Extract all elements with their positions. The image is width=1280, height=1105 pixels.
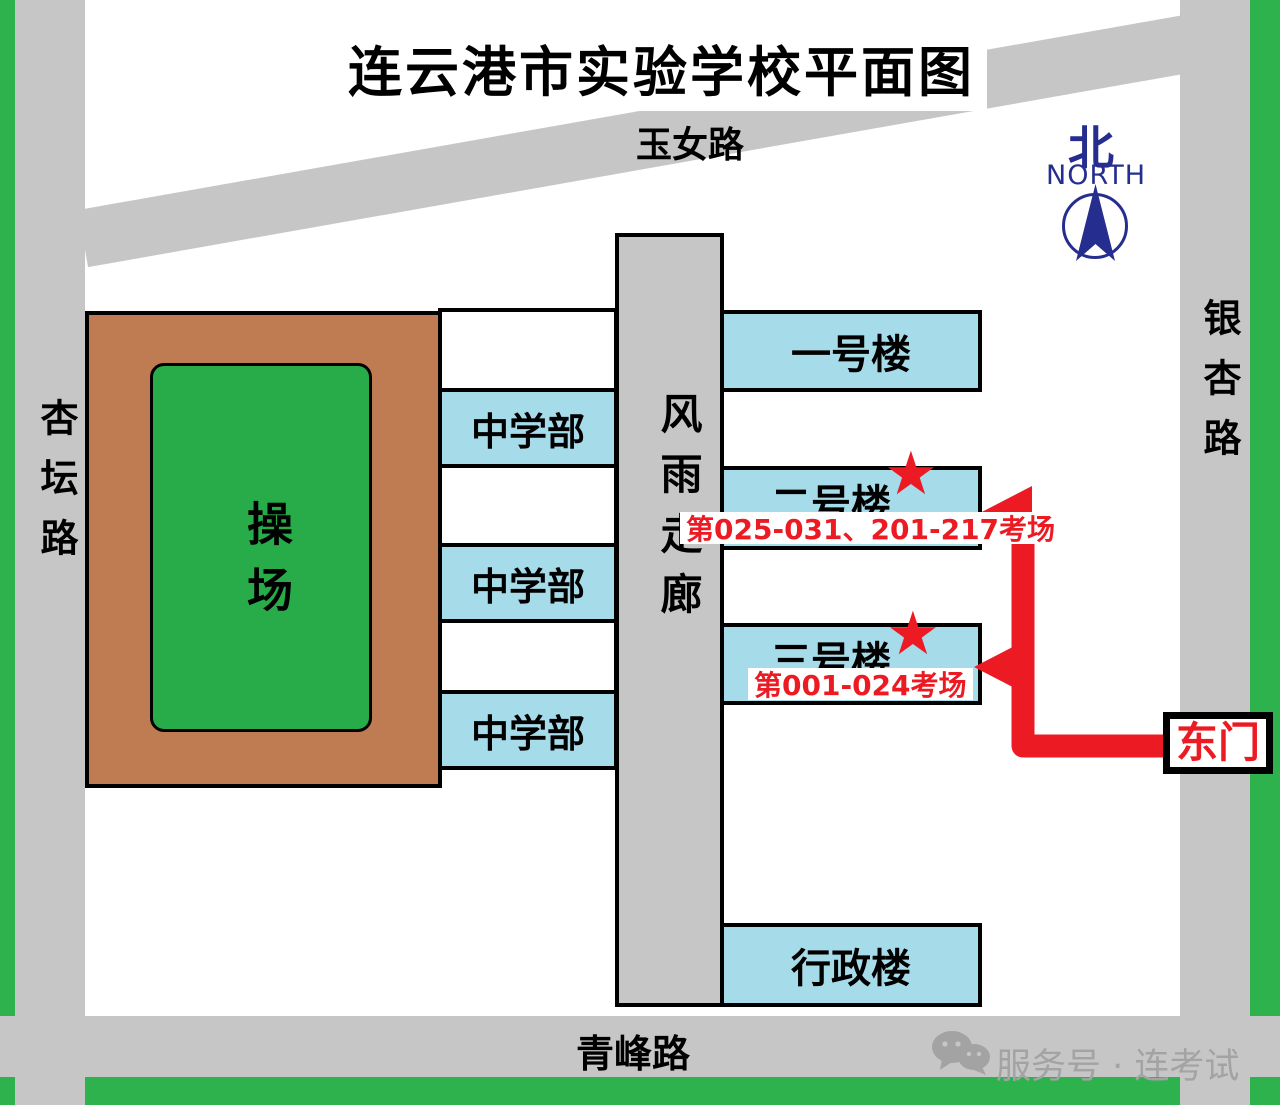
block-white-1 <box>438 308 618 392</box>
building-middle-school-2-label: 中学部 <box>471 556 585 611</box>
green-strip-right <box>1250 0 1280 1105</box>
block-white-2 <box>438 464 618 547</box>
watermark-text: 服务号 · 连考试 <box>996 1038 1239 1089</box>
building-1-label: 一号楼 <box>791 322 911 380</box>
building-middle-school-1: 中学部 <box>438 388 618 468</box>
road-right <box>1180 0 1250 1105</box>
building-2-star-icon: ★ <box>884 444 938 504</box>
road-label-right: 银杏路 <box>1192 298 1247 478</box>
building-3-exam-note: 第001-024考场 <box>748 668 973 700</box>
route-arrowhead-building3 <box>974 638 1030 696</box>
building-middle-school-2: 中学部 <box>438 543 618 623</box>
road-label-top: 玉女路 <box>636 116 744 168</box>
east-gate-box: 东门 <box>1163 712 1273 774</box>
playground-label: 操场 <box>234 500 300 632</box>
route-path <box>1023 515 1166 746</box>
green-strip-left <box>0 0 15 1105</box>
building-1: 一号楼 <box>720 310 982 392</box>
building-middle-school-1-label: 中学部 <box>471 401 585 456</box>
building-middle-school-3: 中学部 <box>438 690 618 770</box>
page-title: 连云港市实验学校平面图 <box>336 24 987 111</box>
road-label-bottom: 青峰路 <box>576 1023 690 1078</box>
building-2-exam-note: 第025-031、201-217考场 <box>680 512 1061 544</box>
wechat-icon <box>930 1030 992 1076</box>
road-label-left: 杏坛路 <box>29 398 84 578</box>
building-3-star-icon: ★ <box>886 604 940 664</box>
building-admin: 行政楼 <box>720 923 982 1007</box>
campus-map: 连云港市实验学校平面图 玉女路 杏坛路 银杏路 青峰路 北 NORTH 操场 中… <box>0 0 1280 1105</box>
east-gate-label: 东门 <box>1176 722 1260 764</box>
block-white-3 <box>438 619 618 694</box>
building-admin-label: 行政楼 <box>791 936 911 994</box>
building-middle-school-3-label: 中学部 <box>471 703 585 758</box>
